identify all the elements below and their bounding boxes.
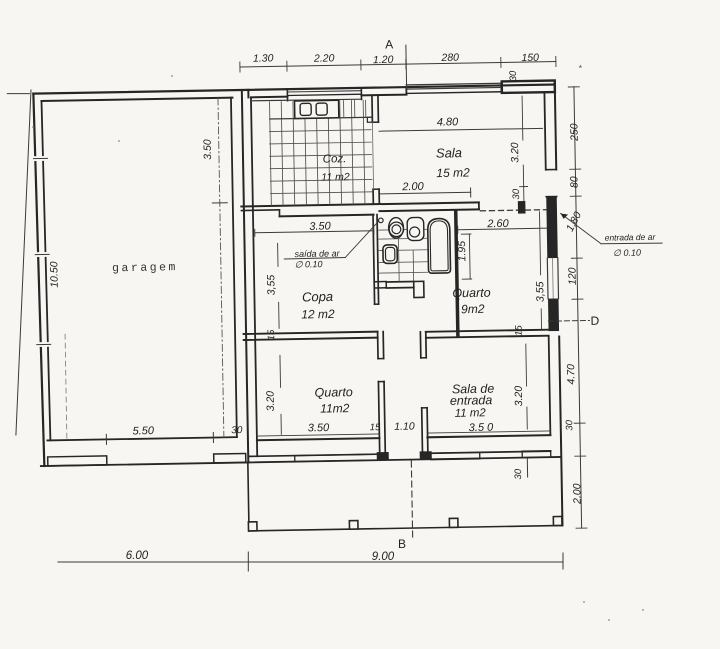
svg-text:2.60: 2.60 — [486, 218, 509, 230]
svg-text:3.50: 3.50 — [202, 139, 214, 160]
svg-text:1.95: 1.95 — [456, 241, 468, 262]
svg-text:10.50: 10.50 — [48, 261, 60, 288]
svg-text:12 m2: 12 m2 — [301, 307, 335, 322]
svg-text:entrada: entrada — [450, 393, 493, 408]
svg-text:9m2: 9m2 — [461, 302, 485, 316]
svg-text:3.20: 3.20 — [265, 391, 277, 412]
svg-text:A: A — [385, 37, 393, 51]
svg-text:30: 30 — [231, 425, 243, 436]
svg-text:9.00: 9.00 — [372, 551, 395, 563]
svg-text:30: 30 — [564, 419, 575, 430]
svg-text:11 m2: 11 m2 — [321, 171, 350, 183]
svg-text:3.20: 3.20 — [513, 386, 525, 407]
svg-text:2.00: 2.00 — [571, 483, 583, 505]
svg-text:30: 30 — [511, 188, 522, 199]
svg-text:15 m2: 15 m2 — [436, 166, 470, 181]
svg-text:30: 30 — [508, 70, 519, 81]
svg-text:entrada de ar: entrada de ar — [605, 232, 657, 243]
svg-text:1.30: 1.30 — [253, 52, 274, 64]
svg-text:80: 80 — [568, 176, 580, 188]
svg-text:D: D — [590, 314, 599, 328]
svg-text:4.70: 4.70 — [565, 364, 577, 385]
svg-text:2.20: 2.20 — [313, 52, 335, 64]
svg-text:5.50: 5.50 — [132, 425, 154, 437]
svg-text:*: * — [579, 63, 583, 73]
svg-text:3.50: 3.50 — [308, 422, 330, 434]
svg-text:30: 30 — [513, 468, 524, 479]
svg-text:B: B — [398, 537, 406, 551]
svg-text:Sala: Sala — [436, 145, 462, 160]
svg-text:1.20: 1.20 — [373, 54, 394, 66]
svg-text:Quarto: Quarto — [452, 286, 491, 301]
svg-text:1.10: 1.10 — [394, 421, 415, 433]
svg-text:120: 120 — [566, 267, 578, 285]
svg-text:3.50: 3.50 — [309, 220, 331, 232]
svg-text:11m2: 11m2 — [320, 401, 350, 416]
svg-text:∅ 0.10: ∅ 0.10 — [613, 248, 641, 258]
svg-text:150: 150 — [521, 52, 539, 64]
svg-text:4.80: 4.80 — [437, 116, 459, 128]
svg-text:280: 280 — [440, 52, 459, 64]
svg-text:2.00: 2.00 — [401, 181, 424, 193]
svg-text:Quarto: Quarto — [314, 385, 353, 400]
svg-text:∅ 0.10: ∅ 0.10 — [295, 259, 323, 269]
svg-text:6.00: 6.00 — [126, 550, 149, 562]
svg-text:Copa: Copa — [302, 289, 333, 305]
svg-text:11 m2: 11 m2 — [455, 407, 487, 420]
svg-text:3.20: 3.20 — [509, 142, 521, 163]
svg-text:3,55: 3,55 — [265, 275, 277, 296]
svg-text:Coz.: Coz. — [323, 153, 347, 165]
svg-text:3,55: 3,55 — [534, 281, 546, 302]
svg-text:garagem: garagem — [112, 261, 178, 275]
svg-text:250: 250 — [568, 123, 580, 142]
